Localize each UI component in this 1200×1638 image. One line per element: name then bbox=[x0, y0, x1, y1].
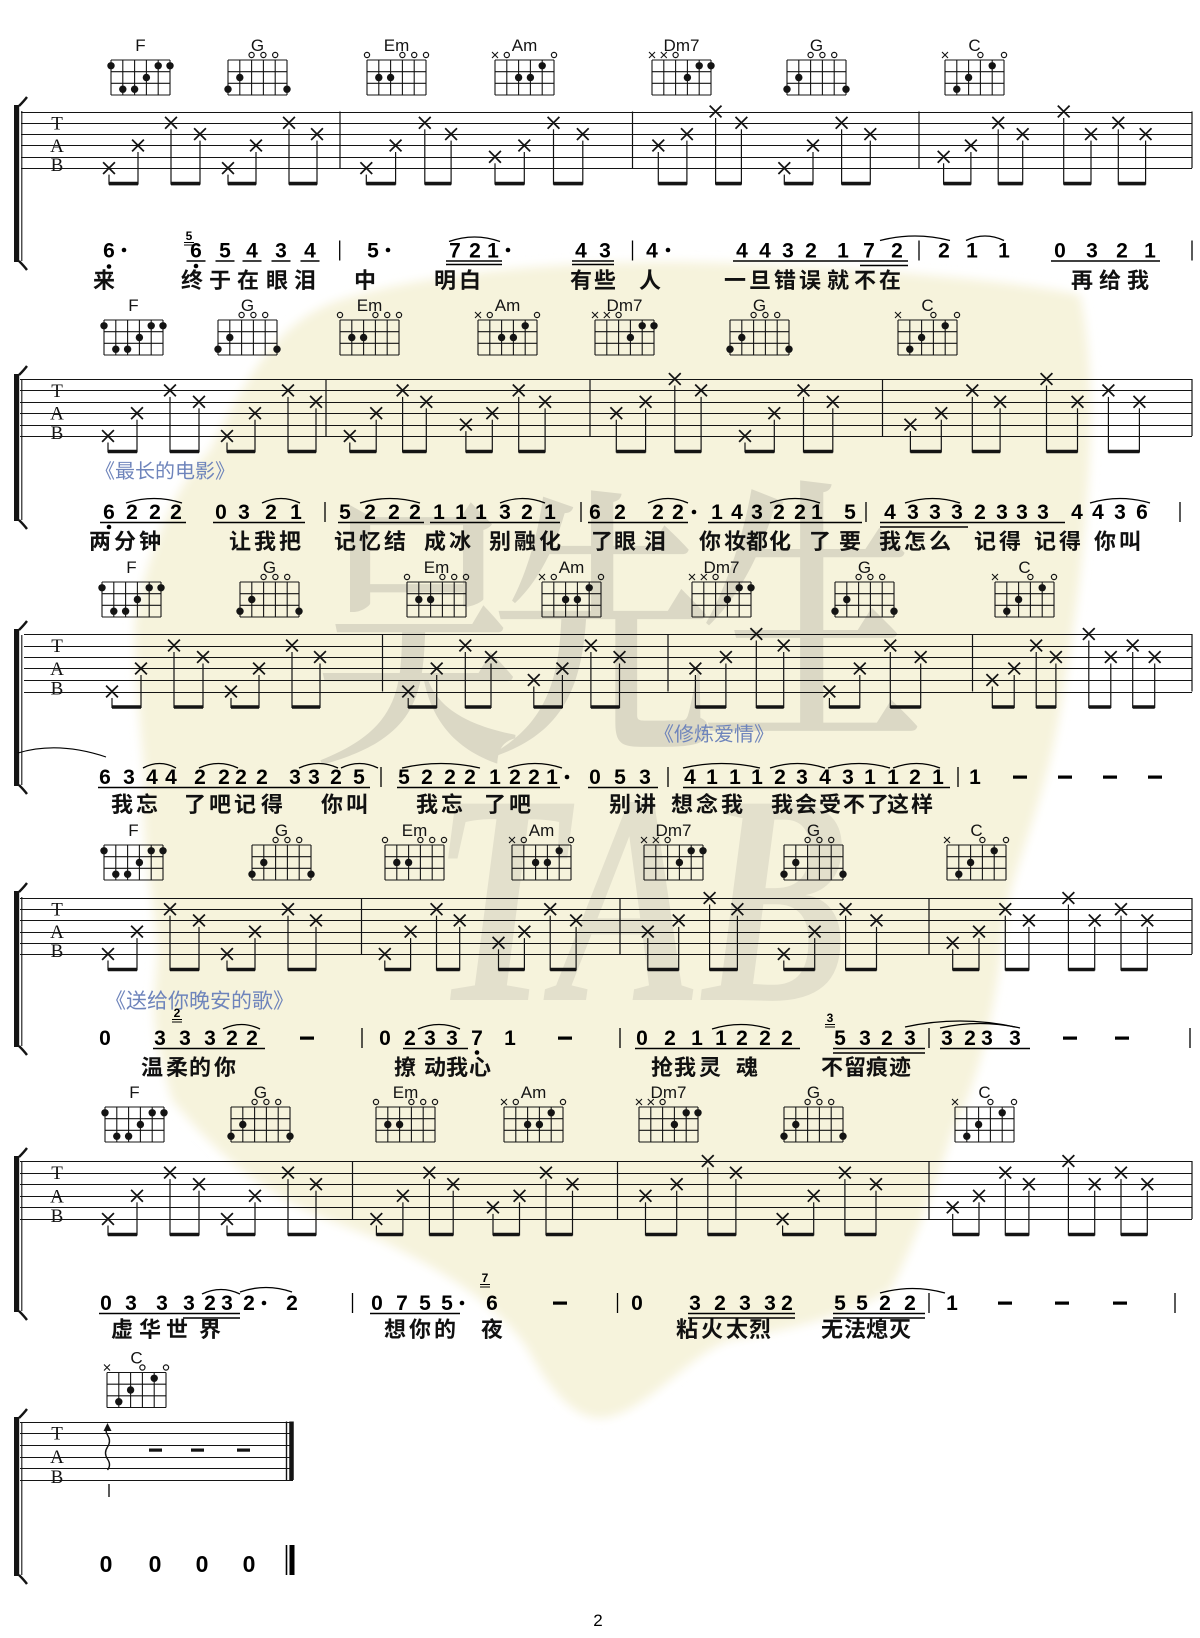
svg-text:6: 6 bbox=[486, 1292, 498, 1315]
svg-text:0: 0 bbox=[371, 1292, 383, 1315]
svg-text:1: 1 bbox=[969, 766, 981, 789]
svg-text:4: 4 bbox=[304, 240, 316, 263]
svg-text:F: F bbox=[135, 36, 145, 55]
svg-text:1: 1 bbox=[290, 501, 302, 524]
svg-text:0: 0 bbox=[243, 1551, 256, 1577]
svg-text:B: B bbox=[51, 423, 64, 444]
svg-text:2: 2 bbox=[964, 1027, 976, 1050]
svg-text:T: T bbox=[51, 636, 63, 657]
svg-text:B: B bbox=[51, 1206, 64, 1227]
svg-text:3: 3 bbox=[123, 766, 135, 789]
svg-text:1: 1 bbox=[837, 240, 849, 263]
svg-text:2: 2 bbox=[409, 501, 421, 524]
svg-text:2: 2 bbox=[404, 1027, 416, 1050]
svg-text:Am: Am bbox=[559, 558, 585, 577]
svg-text:2: 2 bbox=[246, 1027, 258, 1050]
svg-text:7: 7 bbox=[471, 1027, 483, 1050]
svg-text:0: 0 bbox=[149, 1551, 162, 1577]
svg-text:2: 2 bbox=[774, 766, 786, 789]
svg-text:Am: Am bbox=[512, 36, 538, 55]
svg-text:Em: Em bbox=[357, 296, 383, 315]
svg-text:3: 3 bbox=[996, 501, 1008, 524]
svg-text:C: C bbox=[921, 296, 933, 315]
svg-text:2: 2 bbox=[909, 766, 921, 789]
svg-text:2: 2 bbox=[286, 1292, 298, 1315]
svg-text:2: 2 bbox=[879, 1292, 891, 1315]
svg-text:2: 2 bbox=[235, 766, 247, 789]
svg-text:0: 0 bbox=[589, 766, 601, 789]
svg-text:2: 2 bbox=[256, 766, 268, 789]
svg-text:3: 3 bbox=[1009, 1027, 1021, 1050]
svg-text:2: 2 bbox=[672, 501, 684, 524]
svg-text:0: 0 bbox=[1054, 240, 1066, 263]
svg-text:2: 2 bbox=[938, 240, 950, 263]
svg-text:1: 1 bbox=[864, 766, 876, 789]
svg-text:Dm7: Dm7 bbox=[607, 296, 643, 315]
svg-text:1: 1 bbox=[811, 501, 823, 524]
svg-text:B: B bbox=[51, 941, 64, 962]
svg-text:7: 7 bbox=[449, 240, 461, 263]
svg-text:2: 2 bbox=[330, 766, 342, 789]
svg-text:4: 4 bbox=[819, 766, 831, 789]
svg-text:2: 2 bbox=[773, 501, 785, 524]
svg-text:6: 6 bbox=[103, 240, 115, 263]
svg-text:Dm7: Dm7 bbox=[656, 821, 692, 840]
svg-text:2: 2 bbox=[805, 240, 817, 263]
svg-text:A: A bbox=[50, 659, 64, 680]
svg-text:C: C bbox=[968, 36, 980, 55]
svg-text:1: 1 bbox=[932, 766, 944, 789]
svg-text:5: 5 bbox=[367, 240, 379, 263]
svg-text:7: 7 bbox=[396, 1292, 408, 1315]
svg-text:3: 3 bbox=[1037, 501, 1049, 524]
svg-text:6: 6 bbox=[589, 501, 601, 524]
svg-text:Am: Am bbox=[495, 296, 521, 315]
svg-text:A: A bbox=[50, 404, 64, 425]
svg-text:3: 3 bbox=[238, 501, 250, 524]
svg-text:4: 4 bbox=[246, 240, 258, 263]
svg-text:4: 4 bbox=[146, 766, 158, 789]
svg-text:5: 5 bbox=[441, 1292, 453, 1315]
svg-text:2: 2 bbox=[421, 766, 433, 789]
svg-text:Em: Em bbox=[384, 36, 410, 55]
svg-text:4: 4 bbox=[1071, 501, 1083, 524]
svg-text:B: B bbox=[51, 679, 64, 700]
svg-text:1: 1 bbox=[487, 240, 499, 263]
svg-text:C: C bbox=[130, 1349, 142, 1368]
svg-text:5: 5 bbox=[398, 766, 410, 789]
svg-text:A: A bbox=[50, 1447, 64, 1468]
svg-text:2: 2 bbox=[1116, 240, 1128, 263]
svg-text:2: 2 bbox=[652, 501, 664, 524]
svg-text:2: 2 bbox=[194, 766, 206, 789]
svg-text:6: 6 bbox=[1136, 501, 1148, 524]
svg-text:2: 2 bbox=[593, 1611, 602, 1630]
svg-text:3: 3 bbox=[827, 1011, 834, 1025]
svg-text:0: 0 bbox=[196, 1551, 209, 1577]
svg-text:2: 2 bbox=[174, 1006, 181, 1020]
svg-text:3: 3 bbox=[179, 1027, 191, 1050]
svg-text:Em: Em bbox=[424, 558, 450, 577]
svg-text:2: 2 bbox=[736, 1027, 748, 1050]
svg-text:2: 2 bbox=[469, 240, 481, 263]
svg-text:3: 3 bbox=[1114, 501, 1126, 524]
svg-text:0: 0 bbox=[100, 1292, 112, 1315]
svg-text:6: 6 bbox=[103, 501, 115, 524]
svg-text:F: F bbox=[129, 1083, 139, 1102]
svg-text:3: 3 bbox=[639, 766, 651, 789]
svg-text:2: 2 bbox=[781, 1027, 793, 1050]
svg-text:4: 4 bbox=[884, 501, 896, 524]
svg-text:1: 1 bbox=[1144, 240, 1156, 263]
svg-text:0: 0 bbox=[636, 1027, 648, 1050]
svg-text:C: C bbox=[978, 1083, 990, 1102]
svg-text:3: 3 bbox=[941, 1027, 953, 1050]
svg-text:1: 1 bbox=[751, 766, 763, 789]
svg-text:5: 5 bbox=[339, 501, 351, 524]
svg-text:1: 1 bbox=[715, 1027, 727, 1050]
svg-text:2: 2 bbox=[974, 501, 986, 524]
svg-text:Dm7: Dm7 bbox=[664, 36, 700, 55]
svg-text:2: 2 bbox=[218, 766, 230, 789]
svg-text:T: T bbox=[51, 900, 63, 921]
svg-text:A: A bbox=[50, 922, 64, 943]
svg-text:T: T bbox=[51, 381, 63, 402]
svg-text:7: 7 bbox=[863, 240, 875, 263]
svg-text:Am: Am bbox=[521, 1083, 547, 1102]
svg-text:Dm7: Dm7 bbox=[651, 1083, 687, 1102]
svg-text:2: 2 bbox=[891, 240, 903, 263]
svg-text:1: 1 bbox=[489, 766, 501, 789]
svg-text:A: A bbox=[50, 136, 64, 157]
svg-text:2: 2 bbox=[243, 1292, 255, 1315]
svg-text:2: 2 bbox=[364, 501, 376, 524]
svg-text:2: 2 bbox=[714, 1292, 726, 1315]
svg-text:2: 2 bbox=[521, 501, 533, 524]
svg-text:5: 5 bbox=[219, 240, 231, 263]
svg-text:F: F bbox=[126, 558, 136, 577]
svg-text:3: 3 bbox=[183, 1292, 195, 1315]
svg-text:3: 3 bbox=[499, 501, 511, 524]
svg-text:T: T bbox=[51, 113, 63, 134]
svg-text:2: 2 bbox=[170, 501, 182, 524]
svg-text:2: 2 bbox=[509, 766, 521, 789]
svg-text:2: 2 bbox=[794, 501, 806, 524]
svg-text:3: 3 bbox=[929, 501, 941, 524]
svg-text:3: 3 bbox=[782, 240, 794, 263]
svg-text:1: 1 bbox=[966, 240, 978, 263]
svg-text:3: 3 bbox=[275, 240, 287, 263]
svg-text:3: 3 bbox=[446, 1027, 458, 1050]
svg-text:1: 1 bbox=[711, 501, 723, 524]
svg-text:3: 3 bbox=[221, 1292, 233, 1315]
svg-text:2: 2 bbox=[528, 766, 540, 789]
svg-text:2: 2 bbox=[781, 1292, 793, 1315]
svg-text:3: 3 bbox=[907, 501, 919, 524]
svg-text:3: 3 bbox=[308, 766, 320, 789]
svg-text:3: 3 bbox=[904, 1027, 916, 1050]
svg-text:4: 4 bbox=[759, 240, 771, 263]
svg-text:3: 3 bbox=[154, 1027, 166, 1050]
svg-text:3: 3 bbox=[764, 1292, 776, 1315]
svg-text:3: 3 bbox=[859, 1027, 871, 1050]
svg-text:3: 3 bbox=[751, 501, 763, 524]
svg-text:3: 3 bbox=[796, 766, 808, 789]
svg-text:5: 5 bbox=[353, 766, 365, 789]
svg-text:T: T bbox=[51, 1424, 63, 1445]
svg-text:3: 3 bbox=[289, 766, 301, 789]
svg-text:Em: Em bbox=[402, 821, 428, 840]
svg-text:3: 3 bbox=[1086, 240, 1098, 263]
svg-text:2: 2 bbox=[464, 766, 476, 789]
svg-text:C: C bbox=[1018, 558, 1030, 577]
svg-text:1: 1 bbox=[433, 501, 445, 524]
svg-text:Am: Am bbox=[529, 821, 555, 840]
svg-text:1: 1 bbox=[729, 766, 741, 789]
svg-text:4: 4 bbox=[731, 501, 743, 524]
svg-text:2: 2 bbox=[204, 1292, 216, 1315]
svg-text:3: 3 bbox=[424, 1027, 436, 1050]
svg-text:3: 3 bbox=[689, 1292, 701, 1315]
svg-text:5: 5 bbox=[186, 229, 193, 243]
svg-text:5: 5 bbox=[834, 1292, 846, 1315]
svg-text:A: A bbox=[50, 1186, 64, 1207]
svg-text:2: 2 bbox=[149, 501, 161, 524]
svg-text:1: 1 bbox=[504, 1027, 516, 1050]
svg-text:2: 2 bbox=[126, 501, 138, 524]
svg-text:5: 5 bbox=[834, 1027, 846, 1050]
svg-text:3: 3 bbox=[599, 240, 611, 263]
svg-text:F: F bbox=[128, 296, 138, 315]
svg-text:2: 2 bbox=[664, 1027, 676, 1050]
svg-text:0: 0 bbox=[215, 501, 227, 524]
svg-text:3: 3 bbox=[125, 1292, 137, 1315]
svg-text:3: 3 bbox=[1016, 501, 1028, 524]
svg-text:C: C bbox=[970, 821, 982, 840]
svg-text:2: 2 bbox=[444, 766, 456, 789]
svg-text:6: 6 bbox=[99, 766, 111, 789]
svg-text:7: 7 bbox=[482, 1271, 489, 1285]
svg-text:2: 2 bbox=[881, 1027, 893, 1050]
svg-text:2: 2 bbox=[226, 1027, 238, 1050]
svg-text:4: 4 bbox=[736, 240, 748, 263]
svg-text:3: 3 bbox=[156, 1292, 168, 1315]
svg-text:3: 3 bbox=[842, 766, 854, 789]
svg-text:1: 1 bbox=[691, 1027, 703, 1050]
svg-text:B: B bbox=[51, 155, 64, 176]
svg-text:0: 0 bbox=[99, 1027, 111, 1050]
svg-text:4: 4 bbox=[165, 766, 177, 789]
svg-text:4: 4 bbox=[1092, 501, 1104, 524]
svg-text:F: F bbox=[128, 821, 138, 840]
svg-text:1: 1 bbox=[887, 766, 899, 789]
svg-text:5: 5 bbox=[844, 501, 856, 524]
svg-text:2: 2 bbox=[388, 501, 400, 524]
svg-text:3: 3 bbox=[981, 1027, 993, 1050]
svg-text:0: 0 bbox=[631, 1292, 643, 1315]
svg-text:1: 1 bbox=[546, 766, 558, 789]
svg-text:2: 2 bbox=[904, 1292, 916, 1315]
svg-text:3: 3 bbox=[951, 501, 963, 524]
svg-text:5: 5 bbox=[856, 1292, 868, 1315]
svg-text:2: 2 bbox=[614, 501, 626, 524]
svg-text:1: 1 bbox=[455, 501, 467, 524]
svg-text:1: 1 bbox=[946, 1292, 958, 1315]
svg-text:0: 0 bbox=[379, 1027, 391, 1050]
svg-text:1: 1 bbox=[706, 766, 718, 789]
svg-text:Dm7: Dm7 bbox=[704, 558, 740, 577]
svg-text:3: 3 bbox=[739, 1292, 751, 1315]
svg-text:3: 3 bbox=[204, 1027, 216, 1050]
svg-text:4: 4 bbox=[684, 766, 696, 789]
svg-text:1: 1 bbox=[998, 240, 1010, 263]
svg-text:4: 4 bbox=[575, 240, 587, 263]
svg-text:5: 5 bbox=[419, 1292, 431, 1315]
svg-text:1: 1 bbox=[475, 501, 487, 524]
svg-text:Em: Em bbox=[393, 1083, 419, 1102]
svg-text:2: 2 bbox=[759, 1027, 771, 1050]
svg-text:4: 4 bbox=[646, 240, 658, 263]
svg-text:1: 1 bbox=[544, 501, 556, 524]
svg-text:T: T bbox=[51, 1163, 63, 1184]
svg-text:2: 2 bbox=[265, 501, 277, 524]
svg-text:0: 0 bbox=[100, 1551, 113, 1577]
svg-text:B: B bbox=[51, 1467, 64, 1488]
svg-text:5: 5 bbox=[614, 766, 626, 789]
